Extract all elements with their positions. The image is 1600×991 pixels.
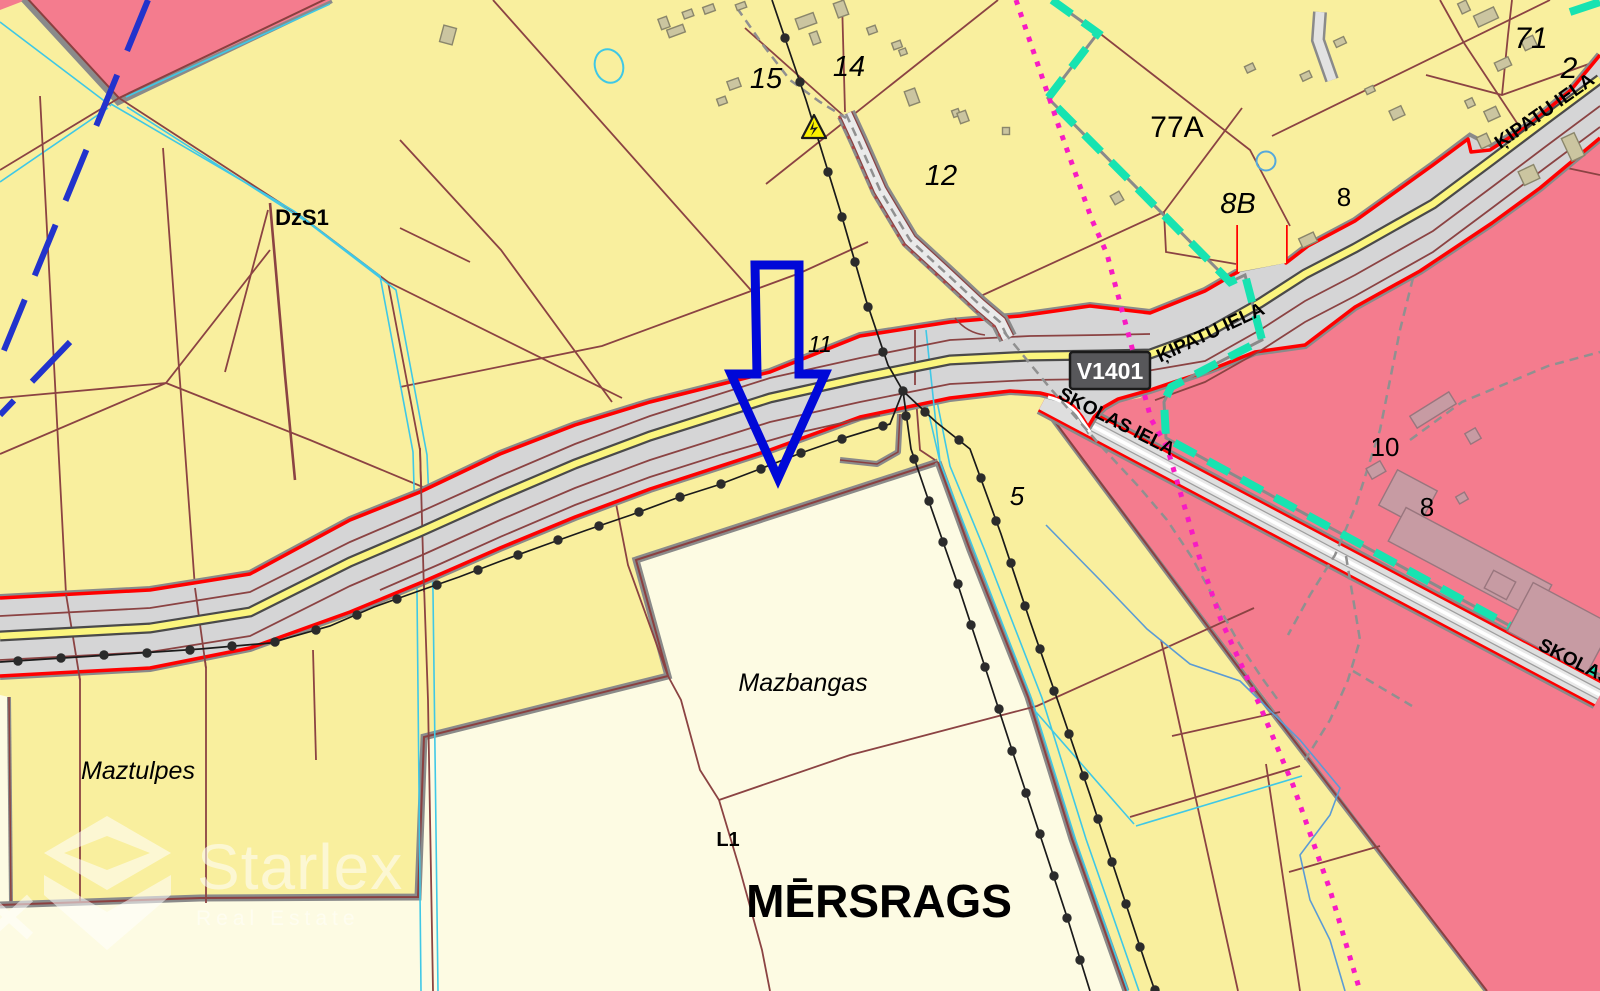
svg-text:11: 11 [808,331,832,357]
svg-text:5: 5 [1010,481,1025,511]
svg-text:8B: 8B [1220,188,1255,220]
svg-text:77A: 77A [1150,111,1203,144]
svg-text:L1: L1 [716,829,739,851]
svg-text:V1401: V1401 [1077,358,1144,384]
svg-text:Maztulpes: Maztulpes [81,757,195,785]
svg-text:15: 15 [750,63,783,95]
svg-text:DzS1: DzS1 [275,205,329,230]
svg-text:10: 10 [1371,432,1400,462]
svg-text:Real Estate: Real Estate [196,907,360,930]
svg-text:Mazbangas: Mazbangas [738,669,867,697]
svg-text:8: 8 [1420,492,1434,522]
svg-text:14: 14 [833,51,865,83]
svg-text:8: 8 [1337,182,1351,212]
svg-text:Starlex: Starlex [197,831,403,903]
svg-text:12: 12 [925,160,957,192]
svg-text:71: 71 [1514,22,1547,55]
svg-text:MĒRSRAGS: MĒRSRAGS [746,875,1012,927]
